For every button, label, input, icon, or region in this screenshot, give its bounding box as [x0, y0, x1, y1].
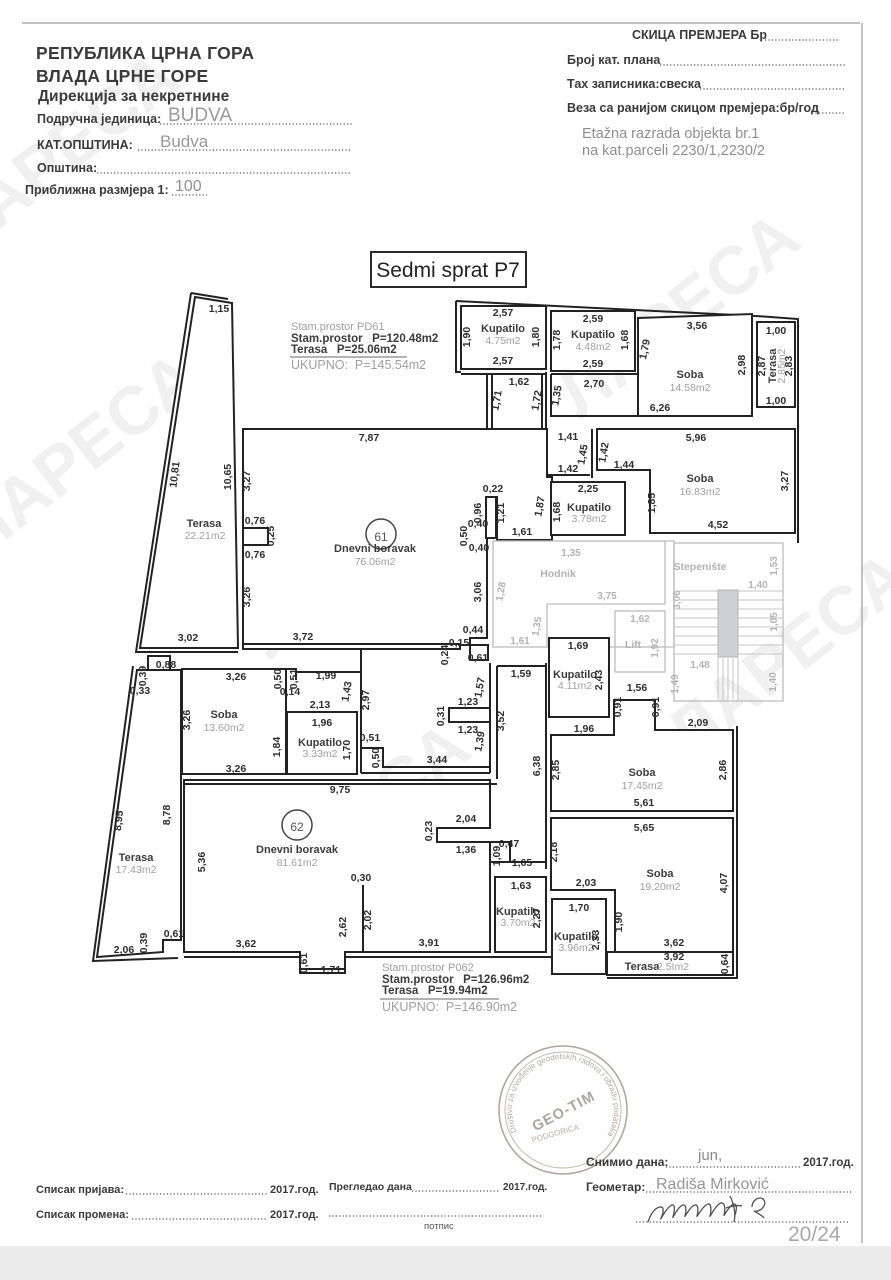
svg-text:Снимио дана:: Снимио дана:: [586, 1155, 668, 1169]
svg-text:Soba: Soba: [647, 868, 675, 880]
svg-text:1,49: 1,49: [670, 674, 681, 694]
svg-text:0,25: 0,25: [265, 526, 277, 547]
svg-text:1,42: 1,42: [558, 463, 579, 475]
svg-text:100: 100: [175, 178, 202, 195]
svg-text:0,30: 0,30: [351, 872, 372, 884]
svg-text:Приближна размјера 1:: Приближна размјера 1:: [25, 183, 169, 197]
svg-text:3.96m2: 3.96m2: [558, 942, 593, 954]
svg-text:20/24: 20/24: [788, 1223, 841, 1246]
svg-text:1,00: 1,00: [766, 395, 787, 407]
svg-text:Soba: Soba: [211, 709, 239, 721]
svg-text:3,26: 3,26: [241, 587, 253, 608]
svg-text:1,78: 1,78: [551, 330, 563, 351]
svg-text:0,39: 0,39: [137, 666, 149, 687]
svg-text:2,27: 2,27: [531, 908, 543, 929]
svg-text:1,63: 1,63: [511, 880, 532, 892]
svg-text:1,48: 1,48: [690, 660, 710, 671]
svg-text:UKUPNO: P=146.90m2: UKUPNO: P=146.90m2: [382, 1000, 517, 1014]
svg-text:Radiša Mirković: Radiša Mirković: [656, 1176, 769, 1193]
svg-text:3,26: 3,26: [226, 671, 247, 683]
svg-text:2,59: 2,59: [583, 358, 604, 370]
svg-text:61: 61: [374, 530, 388, 544]
svg-text:0,24: 0,24: [439, 645, 451, 666]
svg-text:1,62: 1,62: [630, 614, 650, 625]
svg-text:2,25: 2,25: [578, 483, 599, 495]
svg-text:3,72: 3,72: [293, 631, 314, 643]
svg-text:22.21m2: 22.21m2: [185, 530, 226, 542]
svg-text:Kupatilo: Kupatilo: [571, 329, 615, 341]
svg-text:9,75: 9,75: [330, 784, 351, 796]
svg-text:3,26: 3,26: [226, 763, 247, 775]
svg-text:2017.год.: 2017.год.: [270, 1184, 319, 1196]
svg-text:0,40: 0,40: [469, 542, 490, 554]
svg-text:3,91: 3,91: [419, 937, 440, 949]
svg-text:РЕПУБЛИКА ЦРНА ГОРА: РЕПУБЛИКА ЦРНА ГОРА: [36, 43, 254, 63]
svg-text:1,96: 1,96: [312, 717, 333, 729]
svg-text:Stam.prostor P062: Stam.prostor P062: [382, 962, 474, 974]
svg-text:1,69: 1,69: [568, 640, 589, 652]
svg-text:1,40: 1,40: [768, 672, 779, 692]
svg-text:Тах записника:свеска: Тах записника:свеска: [567, 77, 702, 91]
svg-text:КАТ.ОПШТИНА:: КАТ.ОПШТИНА:: [37, 138, 133, 152]
svg-text:1,70: 1,70: [341, 740, 353, 761]
svg-text:8,78: 8,78: [161, 805, 173, 826]
svg-text:2,57: 2,57: [493, 355, 514, 367]
svg-text:Terasa P=19.94m2: Terasa P=19.94m2: [382, 985, 488, 997]
svg-text:Списак промена:: Списак промена:: [36, 1209, 129, 1221]
svg-text:1,21: 1,21: [495, 503, 507, 524]
svg-text:81.61m2: 81.61m2: [277, 857, 318, 869]
svg-text:1,05: 1,05: [769, 612, 780, 632]
svg-text:2,13: 2,13: [310, 699, 331, 711]
svg-text:1,44: 1,44: [614, 459, 635, 471]
svg-text:5,96: 5,96: [686, 432, 707, 444]
svg-text:Прегледао дана: Прегледао дана: [329, 1181, 412, 1193]
svg-text:Dnevni boravak: Dnevni boravak: [256, 844, 339, 856]
svg-text:2017.год.: 2017.год.: [803, 1157, 854, 1169]
svg-text:Terasa: Terasa: [625, 961, 661, 973]
svg-text:1,96: 1,96: [574, 723, 595, 735]
svg-text:1,70: 1,70: [569, 902, 590, 914]
svg-text:Општина:: Општина:: [37, 161, 97, 175]
svg-text:Подручна јединица:: Подручна јединица:: [37, 112, 161, 126]
svg-text:3.33m2: 3.33m2: [302, 748, 337, 760]
svg-text:2017.год.: 2017.год.: [270, 1209, 319, 1221]
svg-text:0,15: 0,15: [449, 637, 470, 649]
svg-text:1,35: 1,35: [561, 548, 581, 559]
svg-text:1,62: 1,62: [509, 376, 530, 388]
svg-text:2,02: 2,02: [362, 910, 374, 931]
svg-text:1,40: 1,40: [748, 580, 768, 591]
svg-text:4.75m2: 4.75m2: [485, 335, 520, 347]
svg-text:2,03: 2,03: [576, 877, 597, 889]
svg-text:0,39: 0,39: [138, 933, 150, 954]
svg-text:2,06: 2,06: [114, 944, 135, 956]
svg-text:5,61: 5,61: [634, 797, 655, 809]
svg-text:2,59: 2,59: [583, 313, 604, 325]
svg-text:Stam.prostor PD61: Stam.prostor PD61: [291, 321, 385, 333]
svg-text:1,68: 1,68: [619, 330, 631, 351]
svg-text:0,44: 0,44: [463, 624, 484, 636]
svg-text:1,56: 1,56: [627, 682, 648, 694]
svg-text:0,33: 0,33: [130, 685, 151, 697]
svg-text:3,27: 3,27: [779, 471, 791, 492]
svg-text:Dnevni boravak: Dnevni boravak: [334, 543, 417, 555]
svg-text:Списак пријава:: Списак пријава:: [36, 1184, 124, 1196]
svg-text:8,95: 8,95: [112, 810, 126, 832]
svg-text:1,53: 1,53: [769, 556, 780, 576]
svg-text:2.5Im2: 2.5Im2: [657, 961, 689, 973]
svg-text:1,61: 1,61: [512, 526, 533, 538]
svg-text:3,06: 3,06: [472, 582, 484, 603]
svg-text:6,26: 6,26: [650, 402, 671, 414]
svg-text:19.20m2: 19.20m2: [640, 881, 681, 893]
svg-text:Број кат. плана: Број кат. плана: [567, 53, 661, 67]
svg-text:17.45m2: 17.45m2: [622, 780, 663, 792]
svg-text:10,65: 10,65: [222, 464, 234, 490]
svg-text:16.83m2: 16.83m2: [680, 486, 721, 498]
svg-text:Sedmi sprat P7: Sedmi sprat P7: [376, 259, 520, 282]
svg-text:UKUPNO: P=145.54m2: UKUPNO: P=145.54m2: [291, 358, 426, 372]
svg-text:СКИЦА ПРЕМЈЕРА Бр: СКИЦА ПРЕМЈЕРА Бр: [632, 28, 767, 42]
svg-text:jun,: jun,: [697, 1147, 722, 1164]
svg-text:1,92: 1,92: [650, 638, 661, 658]
svg-text:4.48m2: 4.48m2: [575, 341, 610, 353]
svg-text:0,31: 0,31: [435, 706, 447, 727]
svg-text:0,91: 0,91: [650, 697, 662, 718]
svg-text:1,41: 1,41: [558, 431, 579, 443]
svg-text:Веза са ранијом скицом премјер: Веза са ранијом скицом премјера:бр/год: [567, 101, 819, 115]
svg-text:Kupatilo: Kupatilo: [481, 323, 525, 335]
svg-text:ВЛАДА ЦРНЕ ГОРЕ: ВЛАДА ЦРНЕ ГОРЕ: [36, 66, 209, 86]
svg-text:1,99: 1,99: [316, 670, 337, 682]
svg-text:3,02: 3,02: [178, 632, 199, 644]
svg-text:1,85: 1,85: [646, 493, 658, 514]
svg-text:0,61: 0,61: [468, 652, 489, 664]
svg-text:2,09: 2,09: [688, 717, 709, 729]
svg-text:2,85: 2,85: [550, 760, 562, 781]
svg-text:Terasa: Terasa: [119, 852, 155, 864]
svg-text:Lift: Lift: [625, 639, 642, 651]
svg-text:3,26: 3,26: [181, 710, 193, 731]
svg-text:5,36: 5,36: [196, 852, 208, 873]
svg-text:1,59: 1,59: [511, 668, 532, 680]
svg-text:Budva: Budva: [160, 132, 209, 151]
svg-text:1,90: 1,90: [613, 912, 625, 933]
svg-text:0,51: 0,51: [360, 732, 381, 744]
svg-text:2,04: 2,04: [456, 813, 477, 825]
svg-text:4.11m2: 4.11m2: [558, 680, 592, 692]
svg-text:Геометар:: Геометар:: [586, 1180, 645, 1194]
svg-text:3,27: 3,27: [241, 471, 253, 492]
svg-text:0,76: 0,76: [245, 515, 266, 527]
svg-text:2017.год.: 2017.год.: [503, 1182, 547, 1193]
svg-text:0,88: 0,88: [156, 659, 177, 671]
svg-text:1,15: 1,15: [209, 303, 230, 315]
svg-text:13.60m2: 13.60m2: [204, 722, 245, 734]
svg-text:Terasa P=25.06m2: Terasa P=25.06m2: [291, 344, 397, 356]
svg-text:Soba: Soba: [687, 473, 715, 485]
svg-text:1,36: 1,36: [456, 844, 477, 856]
svg-text:2,83: 2,83: [783, 356, 795, 377]
svg-text:1,80: 1,80: [530, 327, 542, 348]
svg-text:62: 62: [290, 820, 304, 834]
svg-text:Hodnik: Hodnik: [540, 568, 576, 580]
svg-text:5,65: 5,65: [634, 822, 655, 834]
svg-text:6,38: 6,38: [531, 756, 543, 777]
svg-text:2,70: 2,70: [584, 378, 605, 390]
svg-text:0,64: 0,64: [719, 954, 731, 975]
svg-text:0,91: 0,91: [612, 697, 624, 718]
svg-text:76.06m2: 76.06m2: [355, 556, 396, 568]
svg-text:17.43m2: 17.43m2: [116, 864, 157, 876]
svg-text:na kat.parceli 2230/1,2230/2: na kat.parceli 2230/1,2230/2: [582, 143, 765, 159]
svg-text:2,18: 2,18: [548, 842, 560, 863]
svg-text:0,14: 0,14: [280, 686, 301, 698]
svg-text:0,61: 0,61: [164, 928, 185, 940]
svg-text:1,84: 1,84: [271, 737, 283, 758]
svg-text:2,98: 2,98: [736, 355, 748, 376]
svg-text:BUDVA: BUDVA: [168, 105, 232, 126]
svg-text:0,23: 0,23: [423, 821, 435, 842]
svg-text:0,76: 0,76: [245, 549, 266, 561]
svg-text:3.78m2: 3.78m2: [571, 513, 606, 525]
svg-text:1,71: 1,71: [321, 964, 342, 976]
svg-text:2,33: 2,33: [590, 930, 602, 951]
svg-text:Soba: Soba: [629, 767, 657, 779]
svg-text:3,62: 3,62: [664, 937, 685, 949]
svg-text:1,90: 1,90: [461, 327, 473, 348]
svg-text:3,56: 3,56: [687, 320, 708, 332]
svg-text:3,52: 3,52: [495, 711, 507, 732]
svg-text:4,52: 4,52: [708, 519, 729, 531]
svg-text:1,68: 1,68: [551, 502, 563, 523]
svg-text:1,61: 1,61: [510, 636, 530, 647]
svg-text:3,75: 3,75: [597, 591, 617, 602]
svg-text:1,00: 1,00: [766, 325, 787, 337]
svg-text:4,07: 4,07: [718, 873, 730, 894]
svg-text:7,87: 7,87: [359, 432, 380, 444]
svg-text:2,43: 2,43: [593, 670, 605, 691]
svg-text:Дирекција за некретнине: Дирекција за некретнине: [38, 88, 230, 105]
svg-text:3,44: 3,44: [427, 754, 448, 766]
svg-text:2,86: 2,86: [717, 760, 729, 781]
svg-text:2,62: 2,62: [337, 917, 349, 938]
svg-text:Stepenište: Stepenište: [673, 561, 726, 573]
svg-text:0,22: 0,22: [483, 483, 504, 495]
svg-text:2,97: 2,97: [360, 690, 372, 711]
svg-text:3,62: 3,62: [236, 938, 257, 950]
svg-text:потпис: потпис: [424, 1221, 454, 1232]
svg-text:1,09: 1,09: [491, 846, 503, 867]
svg-text:Soba: Soba: [677, 369, 705, 381]
svg-text:0,50: 0,50: [370, 748, 382, 769]
svg-text:Terasa: Terasa: [187, 518, 223, 530]
svg-text:Etažna razrada objekta br.1: Etažna razrada objekta br.1: [582, 126, 759, 142]
svg-text:0,40: 0,40: [468, 518, 489, 530]
svg-text:2,57: 2,57: [493, 307, 514, 319]
svg-text:14.58m2: 14.58m2: [670, 382, 711, 394]
